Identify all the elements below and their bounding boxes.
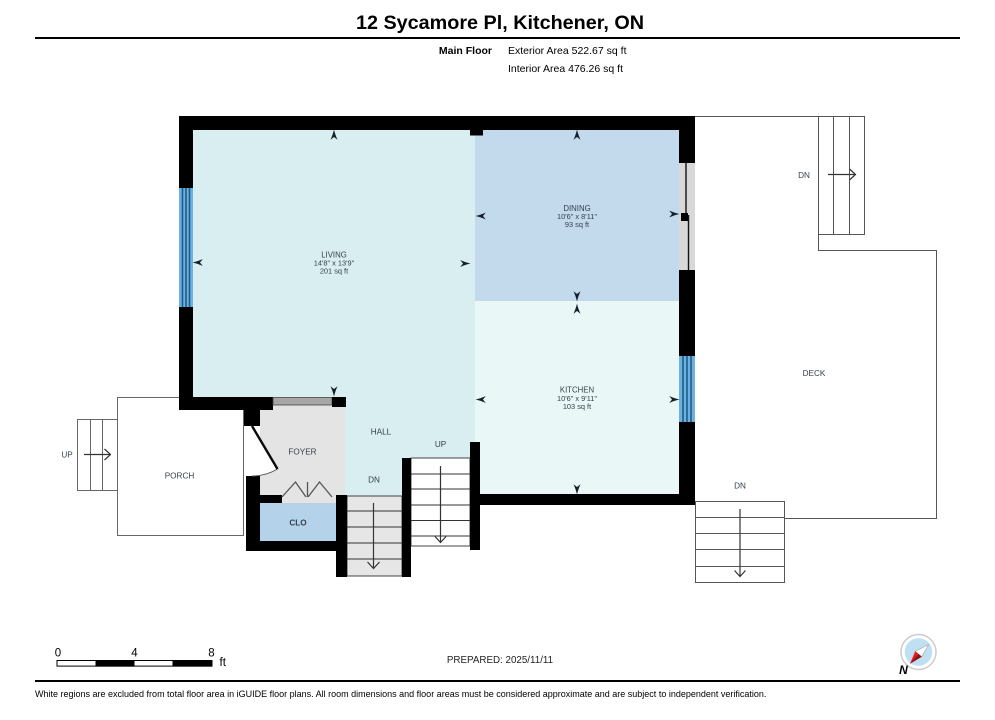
svg-text:White regions are excluded fro: White regions are excluded from total fl…	[35, 689, 766, 699]
svg-text:103 sq ft: 103 sq ft	[563, 402, 591, 411]
svg-text:DN: DN	[368, 476, 380, 485]
svg-text:Main Floor: Main Floor	[439, 45, 492, 57]
svg-text:CLO: CLO	[289, 519, 307, 528]
svg-text:DECK: DECK	[803, 369, 826, 378]
svg-text:PORCH: PORCH	[165, 472, 195, 481]
svg-text:0: 0	[55, 648, 61, 660]
svg-text:FOYER: FOYER	[288, 447, 316, 456]
svg-text:Exterior Area 522.67 sq ft: Exterior Area 522.67 sq ft	[508, 45, 627, 57]
svg-text:12 Sycamore Pl, Kitchener, ON: 12 Sycamore Pl, Kitchener, ON	[356, 12, 644, 34]
svg-text:Interior Area 476.26 sq ft: Interior Area 476.26 sq ft	[508, 63, 623, 75]
svg-text:8: 8	[208, 648, 214, 660]
svg-text:HALL: HALL	[371, 428, 392, 437]
svg-text:N: N	[899, 663, 908, 677]
svg-text:PREPARED: 2025/11/11: PREPARED: 2025/11/11	[447, 655, 553, 666]
svg-text:UP: UP	[435, 440, 447, 449]
svg-text:ft: ft	[220, 657, 227, 669]
svg-text:4: 4	[131, 648, 138, 660]
svg-text:DN: DN	[798, 171, 810, 180]
svg-text:201 sq ft: 201 sq ft	[320, 267, 348, 276]
svg-text:93 sq ft: 93 sq ft	[565, 220, 589, 229]
svg-text:DN: DN	[734, 481, 746, 490]
svg-text:UP: UP	[61, 451, 73, 460]
